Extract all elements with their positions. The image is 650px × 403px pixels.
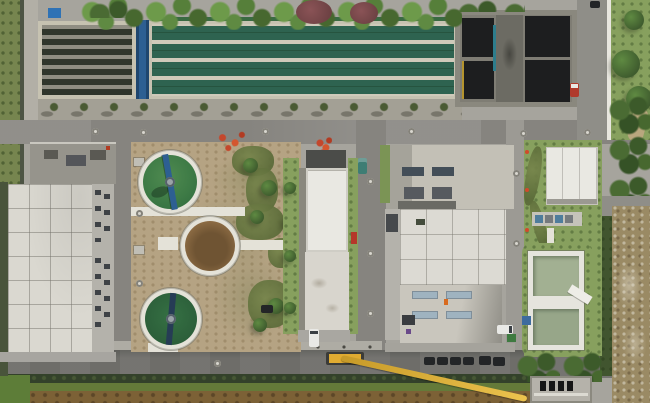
skylight [404,187,424,199]
clarifier-green-south [140,288,202,350]
strip-tree [284,302,296,314]
strip-tree [284,250,296,262]
outfall-walkway [528,296,584,309]
manhole [520,130,527,137]
roof-vent [416,219,425,225]
roof-panel [462,18,494,57]
skylight-blue [446,291,472,299]
small-utility-building [546,147,598,205]
aeration-basin-lanes [38,21,136,99]
manhole [262,128,269,135]
manhole [92,128,99,135]
clarifier-green-north [138,150,202,214]
hedge-west-low [0,182,8,376]
roof-panel [525,60,570,102]
sub-roof [390,145,412,209]
dark-car [590,1,600,8]
apron-southwest [0,352,116,362]
pump-unit [555,215,563,223]
manhole [136,280,143,287]
yard-platform [158,237,178,250]
pump-unit [565,215,573,223]
rooftop-unit [44,150,58,159]
garden-tree [624,10,644,30]
skylight-blue [412,311,438,319]
manhole [367,310,374,317]
red-car [570,83,579,97]
roof-band [398,201,456,209]
clarifier-water [185,221,235,271]
skylight [432,187,452,199]
yard-tree [261,180,277,196]
treetop-corner [86,0,132,18]
center-building-north [306,150,346,170]
green-dumpster [507,334,516,342]
roof-panel [462,61,494,99]
center-building-apron [298,330,350,342]
traffic-cone [525,188,529,192]
manhole [140,129,147,136]
manhole [408,128,415,135]
skylight [432,167,454,176]
aerial-photo-treatment-plant [0,0,650,403]
teal-car [358,158,367,174]
red-marker [106,146,110,150]
yard-pad [134,246,144,254]
manhole [513,240,520,247]
main-building-mid-roof [400,209,506,285]
roof-panel [525,16,570,57]
annex-windows [95,190,101,242]
roof-equipment [402,315,415,325]
parked-car [463,357,474,365]
rooftop-unit [90,150,106,160]
annex-windows [95,258,101,328]
main-building-south-roof [400,285,502,343]
dark-roof-filter-building [455,10,577,107]
clarifier-brown-center [180,216,240,276]
manhole [584,129,591,136]
manhole [513,170,520,177]
annex-windows [104,194,110,238]
field-dirt-south [28,391,562,403]
parked-car [450,357,461,365]
main-building-apron [385,343,515,352]
path-west [24,0,38,122]
blue-shed [48,8,61,18]
southeast-building [530,376,592,403]
trees-east [606,96,650,200]
sedimentation-channels [149,21,457,99]
grass-strip [348,158,358,334]
traffic-cone [525,228,529,232]
construction-dirt-area [612,206,650,403]
van-windshield [509,326,512,333]
teal-pipe [493,25,496,71]
parked-car [424,357,435,365]
worker-orange [444,299,448,305]
treetop-northeast [455,0,525,12]
main-building-west-annex [385,209,400,340]
rooftop-plant-room [30,142,116,184]
center-building-roof-upper [306,168,348,252]
parked-car [493,357,505,366]
tree-lined-walkway [38,99,462,120]
treetop-band-north [80,0,462,30]
red-maple-tree [296,0,332,24]
pump-unit [545,215,553,223]
outfall-basin-south [533,309,579,345]
dark-car [261,305,273,313]
grass-strip [380,145,390,203]
car-roof-white [571,84,578,88]
skylight-blue [412,291,438,299]
white-van [497,325,513,334]
red-flower-bed [214,130,248,152]
east-access-road [577,0,607,140]
yard-tree [250,210,264,224]
large-white-workshop-roof [8,184,92,352]
parked-car [437,357,448,365]
manhole [214,360,221,367]
manhole [367,178,374,185]
annex-windows [104,264,110,322]
grass-corner-southwest [0,375,30,403]
manhole [136,210,143,217]
yard-tree [243,158,258,173]
center-roof-strip [496,15,523,102]
traffic-cone [525,150,529,154]
roof-vents-black [540,381,574,391]
road-vertical-west [114,120,132,378]
strip-tree [284,182,296,194]
roof-ridge [534,393,588,396]
center-building-roof-lower [305,252,349,330]
pump-unit [535,215,543,223]
bridge-hub [166,314,176,324]
van-windshield [310,331,318,334]
blue-pad [522,316,531,325]
red-hydrant [351,232,357,244]
traveling-bridge-crane [136,20,149,102]
white-van [309,329,319,347]
garden-tree [612,50,640,78]
red-maple-tree [350,2,378,24]
yard-tree [253,318,267,332]
main-building-north-roof [390,145,514,209]
worker-purple [406,329,411,334]
parked-car [479,356,491,365]
skylight [402,167,424,176]
manhole [367,250,374,257]
skylight-blue [446,311,472,319]
annex-vent [386,214,398,232]
bridge-hub [165,177,175,187]
rooftop-unit [66,155,86,166]
